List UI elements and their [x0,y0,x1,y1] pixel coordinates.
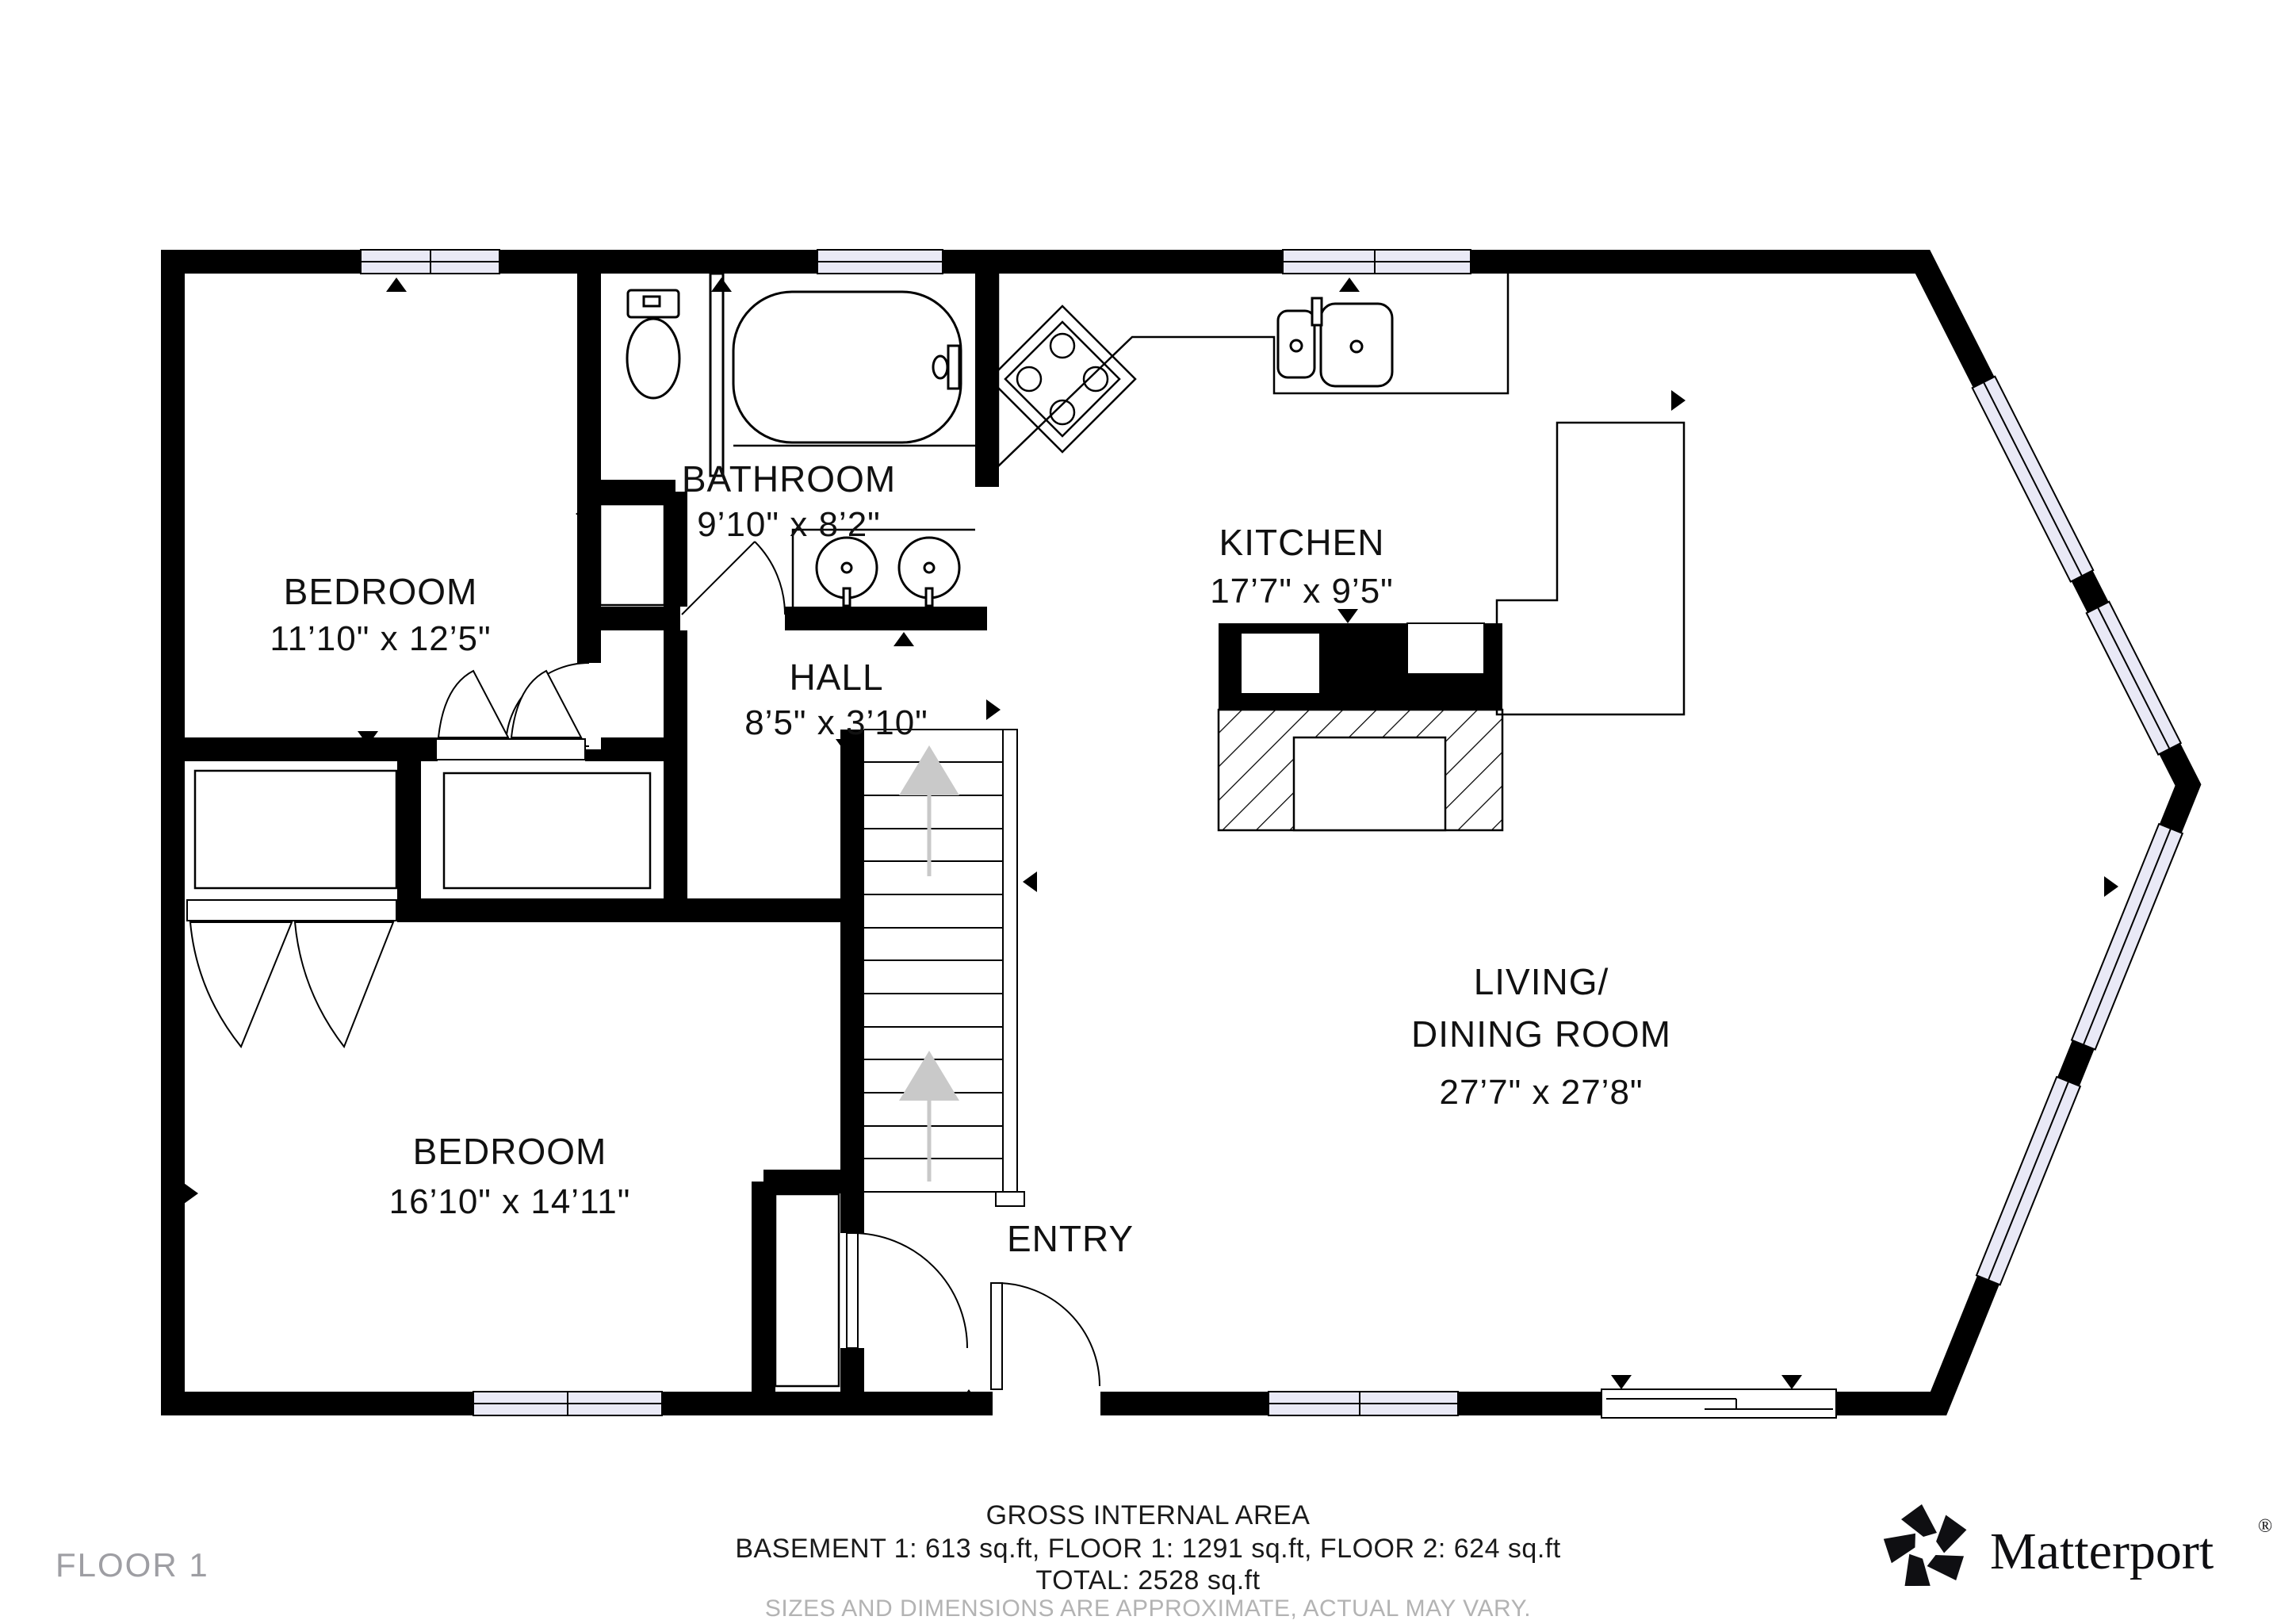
label-bedroom1-dims: 11’10" x 12’5" [270,619,491,658]
marker-down-icon [1611,1375,1632,1389]
window-prow-lower-1 [2072,824,2183,1050]
floorplan-page: BEDROOM 11’10" x 12’5" BATHROOM 9’10" x … [0,0,2296,1624]
matterport-pinwheel-icon [1877,1504,1973,1598]
brand-name: Matterport [1990,1522,2214,1580]
stair-railing-cap [996,1192,1024,1206]
label-living-name-2: DINING ROOM [1411,1013,1671,1055]
footer-disclaimer: SIZES AND DIMENSIONS ARE APPROXIMATE, AC… [765,1595,1531,1622]
stair-railing [1003,730,1017,1192]
marker-up-icon [1339,278,1360,292]
door-bathroom [680,542,785,630]
closet-bedroom2 [187,771,396,1047]
label-hall-name: HALL [789,657,883,698]
footer-total: TOTAL: 2528 sq.ft [1035,1565,1260,1595]
door-front-entry [991,1283,1100,1418]
kitchen-counter [998,274,1508,466]
staircase [864,730,1024,1206]
window-prow-lower-2 [1976,1077,2080,1285]
marker-down-icon [1781,1375,1802,1389]
label-kitchen-name: KITCHEN [1219,522,1385,563]
label-living-dims: 27’7" x 27’8" [1439,1073,1643,1112]
label-entry-name: ENTRY [1007,1218,1134,1259]
label-hall-dims: 8’5" x 3’10" [744,703,928,742]
marker-down-icon [1337,609,1358,623]
window-living-bottom [1269,1392,1458,1415]
window-prow-upper-1 [1973,377,2094,582]
label-bathroom-dims: 9’10" x 8’2" [697,505,881,544]
window-bathroom-top [817,250,943,274]
footer-breakdown: BASEMENT 1: 613 sq.ft, FLOOR 1: 1291 sq.… [735,1534,1560,1564]
marker-left-icon [1023,871,1037,892]
shower-divider [710,274,723,476]
label-bedroom2-name: BEDROOM [413,1131,607,1172]
marker-up-icon [894,632,914,646]
label-living-name-1: LIVING/ [1474,961,1609,1002]
label-kitchen-dims: 17’7" x 9’5" [1210,572,1394,611]
kitchen-peninsula [1497,423,1684,714]
floor-label: FLOOR 1 [55,1546,209,1584]
toilet [627,290,679,398]
label-bedroom2-dims: 16’10" x 14’11" [389,1182,631,1221]
label-bathroom-name: BATHROOM [682,458,896,500]
window-kitchen-top [1283,250,1471,274]
marker-right-icon [986,699,1001,720]
brand-logo: Matterport ® [1877,1504,2272,1598]
window-bedroom1-top [361,250,499,274]
brand-registered-mark: ® [2258,1516,2272,1537]
floorplan-canvas: BEDROOM 11’10" x 12’5" BATHROOM 9’10" x … [0,0,2296,1624]
marker-right-icon [184,1183,198,1204]
marker-right-icon [2104,876,2118,897]
marker-right-icon [1671,390,1686,411]
window-bedroom2-bottom [473,1392,662,1415]
closet-entry [775,1194,839,1386]
footer-title: GROSS INTERNAL AREA [986,1500,1311,1530]
closet-linen [600,504,664,605]
closet-bedroom1 [436,671,650,888]
scan-markers [184,278,2118,1404]
footer-area-summary: GROSS INTERNAL AREA BASEMENT 1: 613 sq.f… [735,1500,1560,1622]
marker-up-icon [386,278,407,292]
sliding-door-living [1601,1389,1836,1418]
bathtub [733,292,975,446]
door-bedroom2 [840,1233,967,1348]
window-prow-upper-2 [2087,602,2181,755]
fireplace [1219,623,1502,830]
stairs-up-arrow-2 [899,1051,959,1182]
stairs-up-arrow-1 [899,745,959,876]
label-bedroom1-name: BEDROOM [284,571,478,612]
kitchen-sink [1278,298,1392,386]
exterior-walls [173,262,2188,1404]
stove-cooktop [989,306,1135,452]
